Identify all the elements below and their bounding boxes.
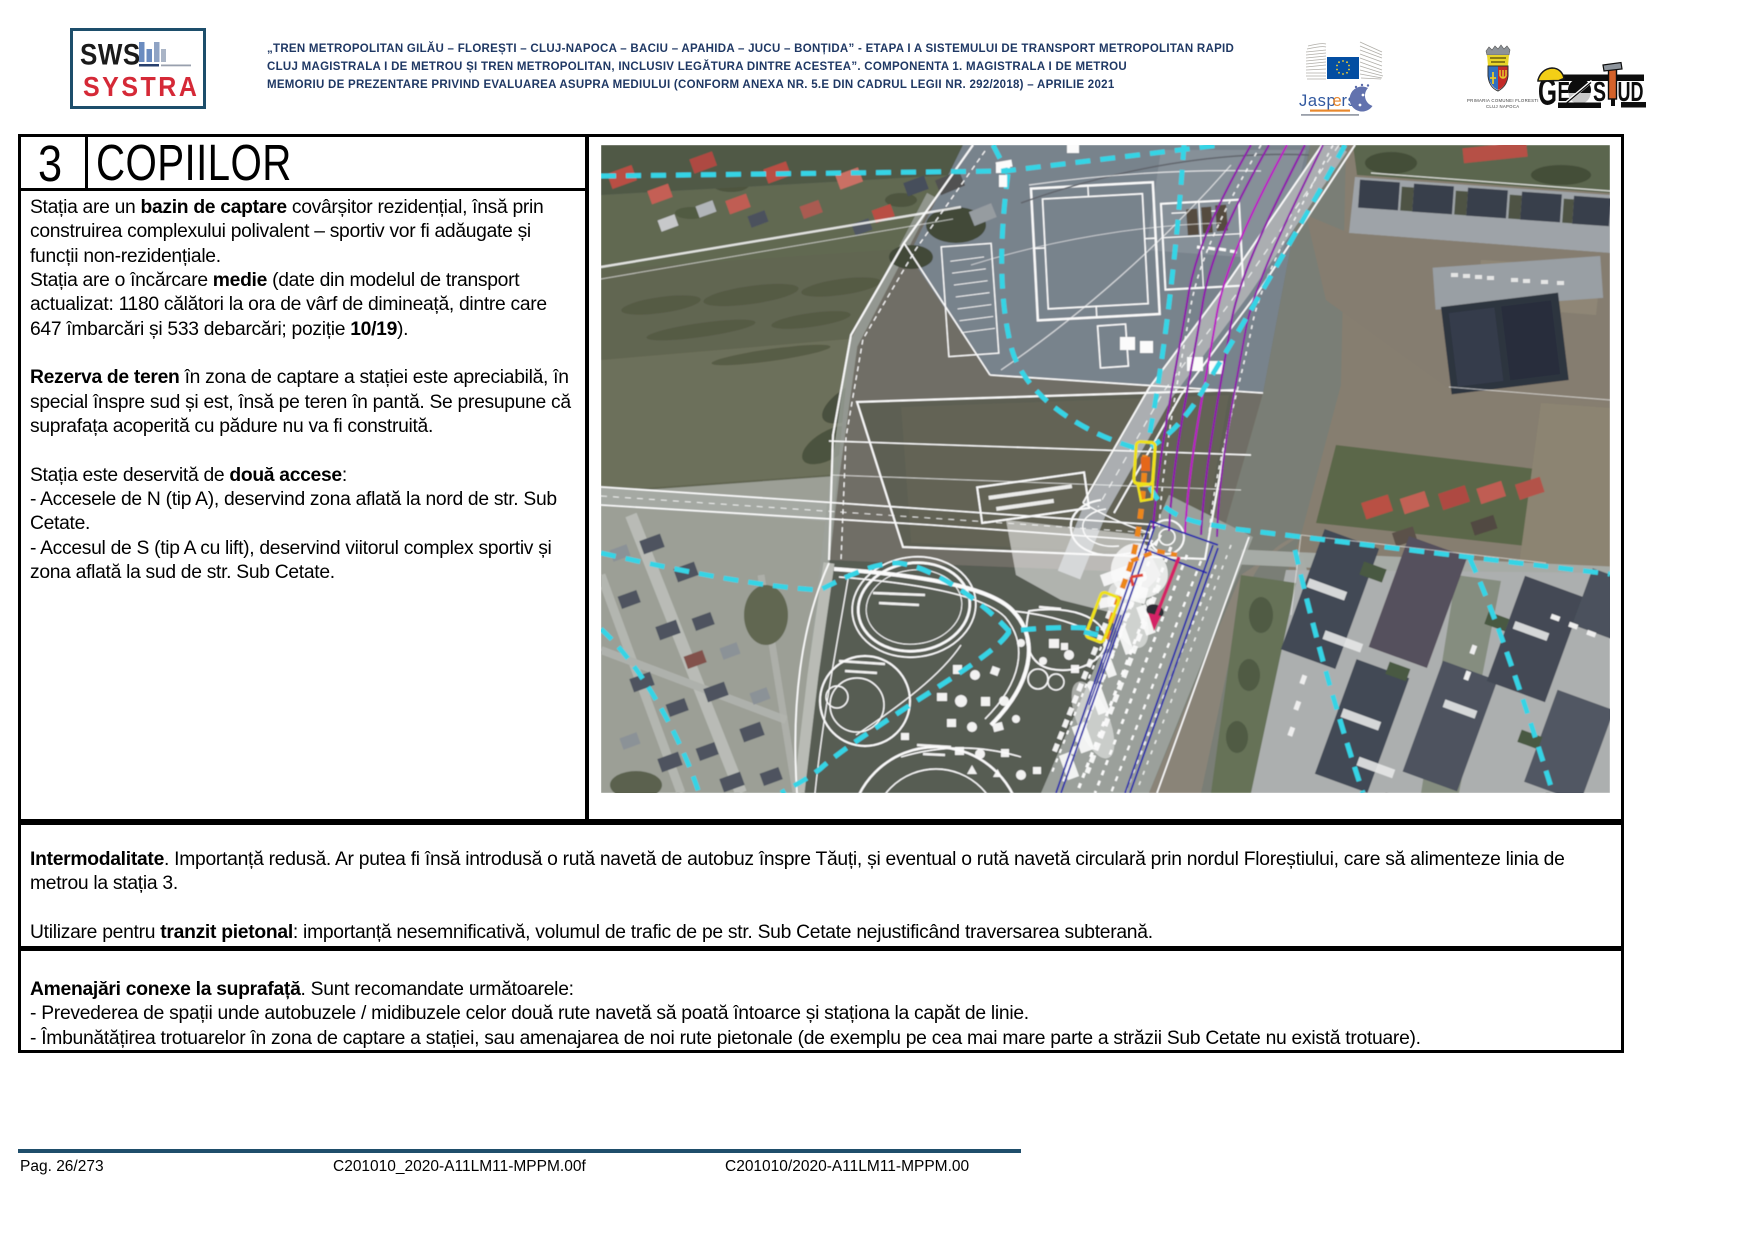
svg-text:e: e [1333,92,1342,110]
svg-text:Jasp: Jasp [1299,92,1336,110]
svg-text:PRIMARIA COMUNEI FLORESTI: PRIMARIA COMUNEI FLORESTI [1467,98,1539,103]
svg-text:S: S [1593,76,1606,107]
svg-text:CLUJ NAPOCA: CLUJ NAPOCA [1486,104,1519,109]
